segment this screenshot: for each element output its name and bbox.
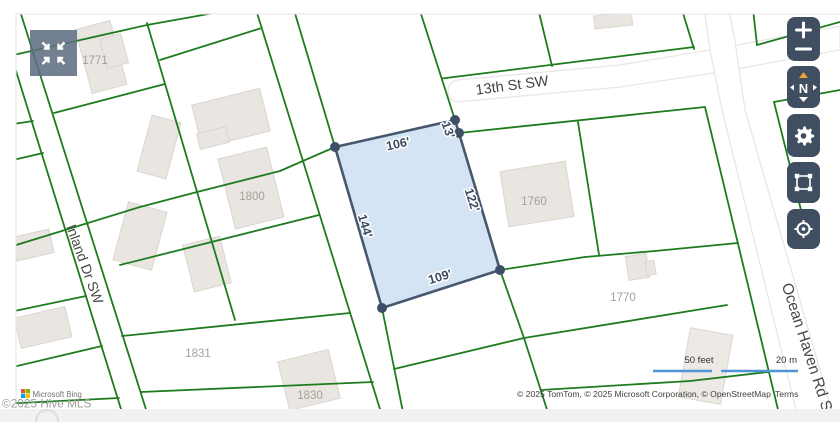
- svg-text:N: N: [799, 81, 808, 96]
- svg-text:1770: 1770: [610, 292, 636, 304]
- svg-text:1800: 1800: [239, 191, 265, 203]
- svg-text:1760: 1760: [521, 196, 547, 208]
- svg-text:© 2025 TomTom, © 2025 Microsof: © 2025 TomTom, © 2025 Microsoft Corporat…: [517, 389, 771, 399]
- svg-text:20 m: 20 m: [776, 355, 797, 366]
- svg-text:1830: 1830: [297, 390, 323, 402]
- svg-text:©2025 Hive MLS: ©2025 Hive MLS: [2, 397, 91, 411]
- svg-text:Terms: Terms: [775, 389, 798, 399]
- svg-text:1771: 1771: [82, 55, 108, 67]
- svg-text:50 feet: 50 feet: [684, 355, 713, 366]
- svg-text:1831: 1831: [185, 348, 211, 360]
